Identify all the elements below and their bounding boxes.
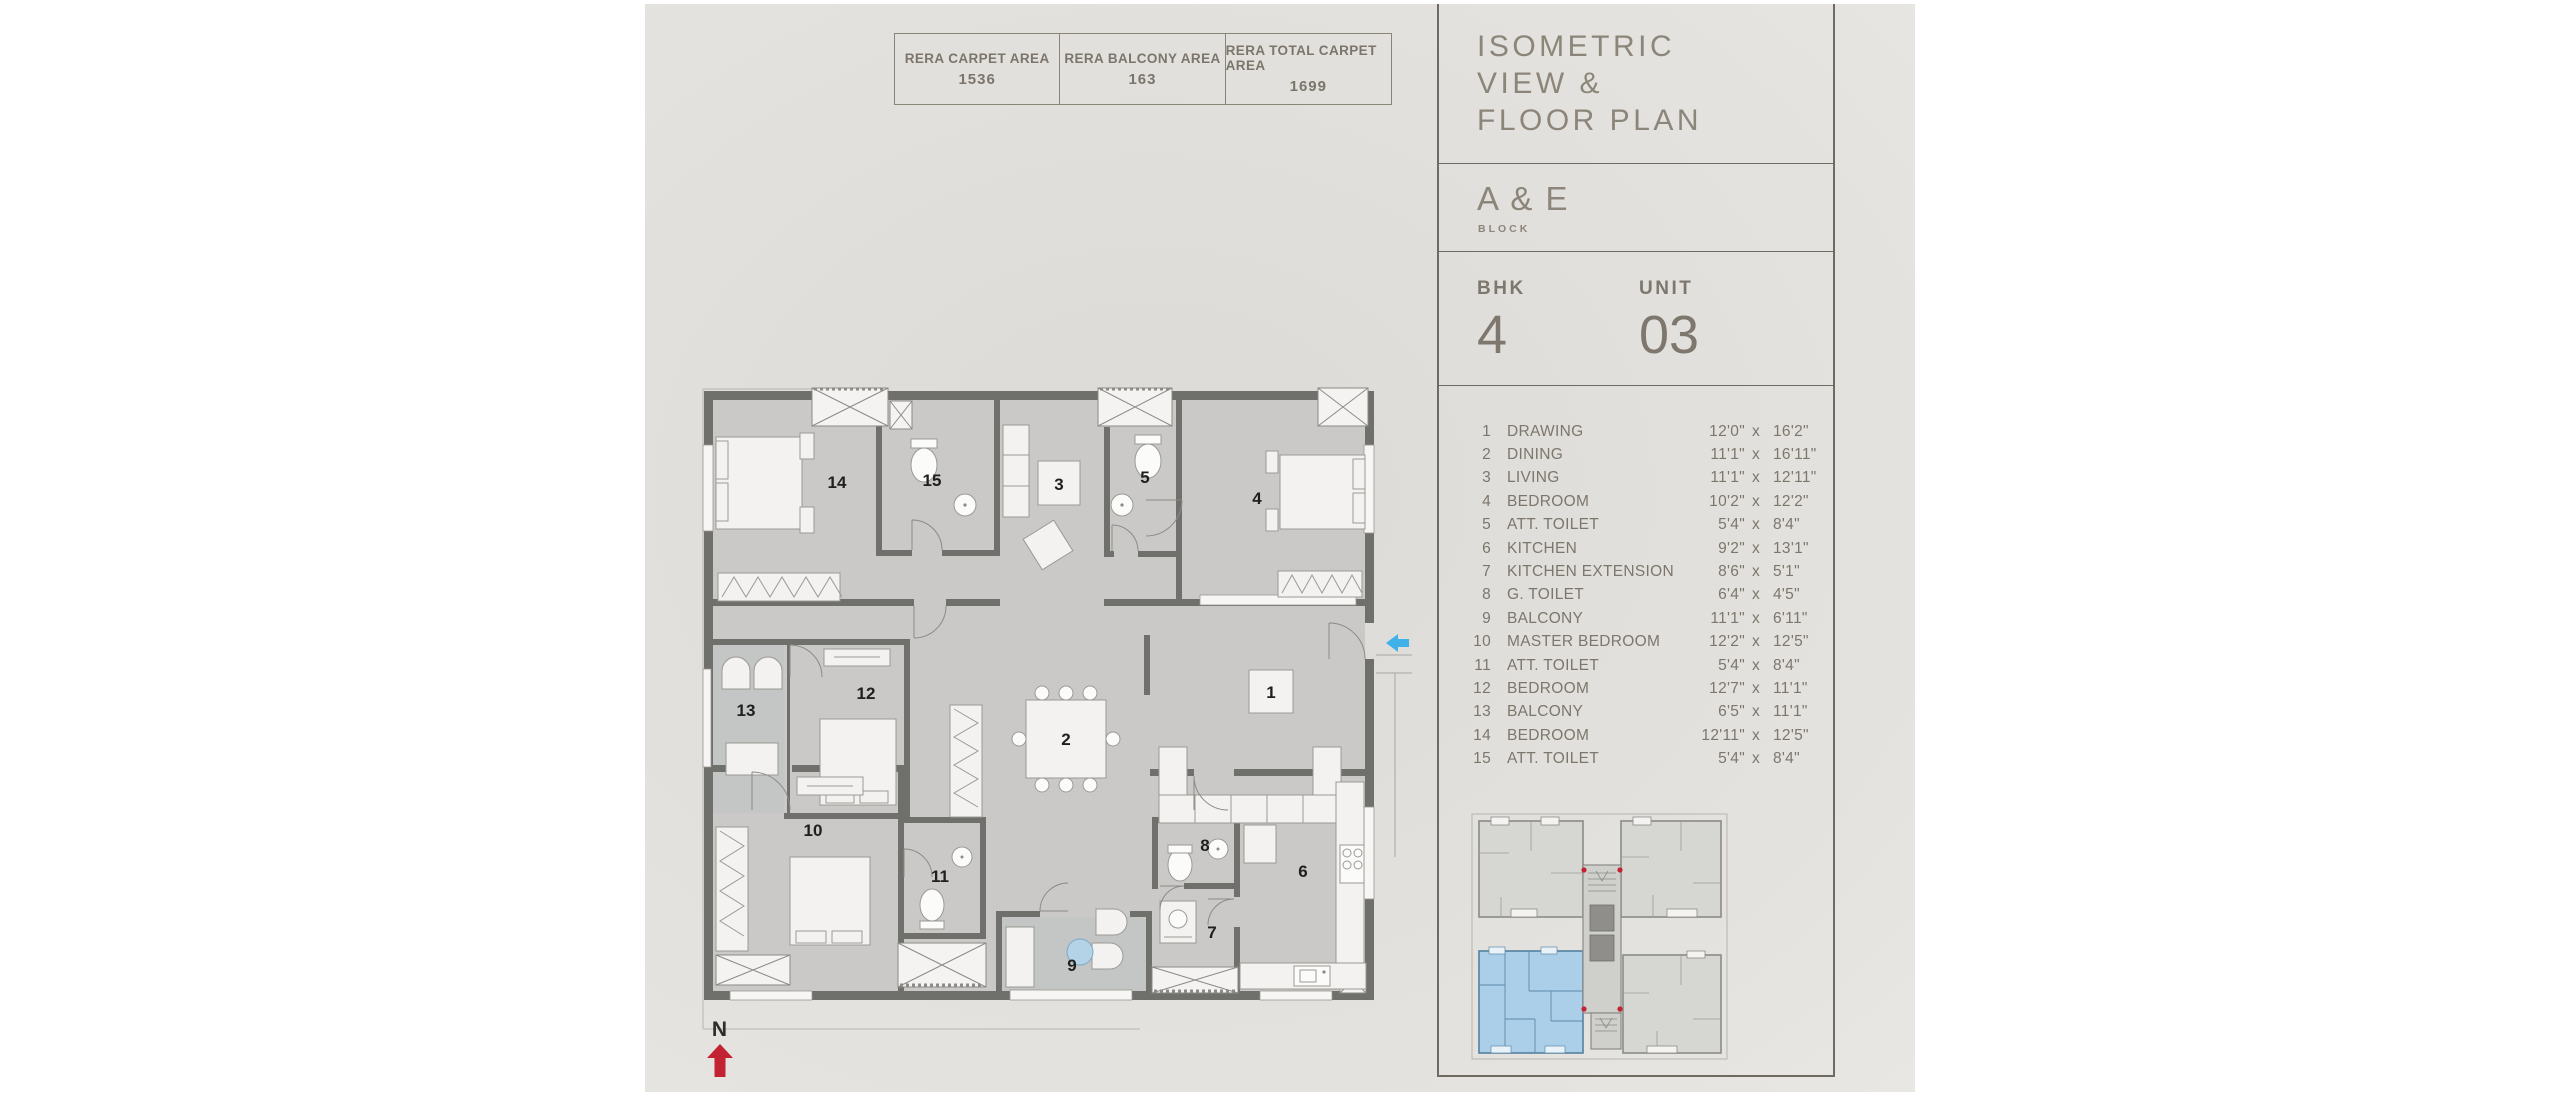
wardrobe-14-icon [718,573,842,601]
passage-wardrobe-icon [950,705,982,817]
dimension-row: 4BEDROOM10'2"x12'2" [1439,490,1833,513]
unit-label: UNIT [1639,278,1699,300]
duct-below-toilet-11 [898,943,986,987]
dimension-row: 14BEDROOM12'11"x12'5" [1439,724,1833,747]
keyplan-unit-highlighted [1479,947,1583,1053]
unit-column: UNIT 03 [1639,278,1699,366]
room-label-7: 7 [1207,923,1216,942]
unit-value: 03 [1639,304,1699,366]
room-label-3: 3 [1054,475,1063,494]
washing-machine-icon [1160,901,1196,943]
dimension-row: 1DRAWING12'0"x16'2" [1439,420,1833,443]
room-label-4: 4 [1252,489,1262,508]
room-label-2: 2 [1061,730,1070,749]
bed-4-icon [1266,451,1365,531]
keyplan-unit-top-right [1621,817,1721,917]
bhk-column: BHK 4 [1477,278,1526,366]
dimension-row: 3LIVING11'1"x12'11" [1439,467,1833,490]
dimension-row: 9BALCONY11'1"x6'11" [1439,607,1833,630]
bhk-unit-section: BHK 4 UNIT 03 [1439,252,1833,386]
rera-carpet-area-label: RERA CARPET AREA [905,51,1050,66]
rera-total-area-value: 1699 [1290,78,1327,95]
page-title-line1: ISOMETRIC [1477,28,1833,65]
rera-total-area-cell: RERA TOTAL CARPET AREA 1699 [1226,34,1391,104]
dimension-row: 10MASTER BEDROOM12'2"x12'5" [1439,631,1833,654]
dimension-row: 6KITCHEN9'2"x13'1" [1439,537,1833,560]
duct-top-3 [1318,388,1368,426]
duct-below-kitchen-ext [1152,967,1238,993]
north-label: N [702,1018,738,1042]
room-label-8: 8 [1200,836,1209,855]
room-label-1: 1 [1266,683,1275,702]
dimension-row: 11ATT. TOILET5'4"x8'4" [1439,654,1833,677]
dimension-row: 7KITCHEN EXTENSION8'6"x5'1" [1439,560,1833,583]
rera-total-area-label: RERA TOTAL CARPET AREA [1226,43,1391,73]
dimension-row: 12BEDROOM12'7"x11'1" [1439,677,1833,700]
block-name: A & E [1477,180,1833,218]
dimensions-table: 1DRAWING12'0"x16'2"2DINING11'1"x16'11"3L… [1439,386,1833,771]
room-label-6: 6 [1298,862,1307,881]
dimension-row: 2DINING11'1"x16'11" [1439,443,1833,466]
page-title-line3: FLOOR PLAN [1477,102,1833,139]
rera-balcony-area-value: 163 [1128,71,1156,88]
room-label-15: 15 [923,471,942,490]
corridor-context-lines [1376,655,1412,857]
entry-direction-arrow-icon [1386,634,1409,652]
duct-bottom-left [716,955,790,985]
keyplan-unit-bottom-right [1623,951,1721,1053]
room-label-11: 11 [931,867,949,886]
page-canvas: RERA CARPET AREA 1536 RERA BALCONY AREA … [645,4,1915,1092]
bed-14-icon [716,433,814,533]
duct-top-1 [812,388,888,426]
wardrobe-10-icon [716,827,748,951]
room-label-13: 13 [737,701,756,720]
block-section: A & E BLOCK [1439,164,1833,252]
keyplan-core [1583,865,1621,1049]
wardrobe-4-icon [1278,571,1362,597]
rera-carpet-area-value: 1536 [958,71,995,88]
room-label-12: 12 [857,684,876,703]
dimension-row: 15ATT. TOILET5'4"x8'4" [1439,747,1833,770]
page-title: ISOMETRIC VIEW & FLOOR PLAN [1477,28,1833,139]
bhk-value: 4 [1477,304,1526,366]
room-label-9: 9 [1067,956,1076,975]
bhk-label: BHK [1477,278,1526,300]
duct-top-2 [1098,388,1172,426]
keyplan-unit-top-left [1479,817,1583,917]
duct-top-1b [890,401,912,429]
panel-title-section: ISOMETRIC VIEW & FLOOR PLAN [1439,4,1833,164]
floor-plan: 1 2 3 4 5 6 7 8 9 10 11 12 13 14 15 [700,387,1413,1037]
room-label-5: 5 [1140,468,1149,487]
rera-balcony-area-label: RERA BALCONY AREA [1064,51,1220,66]
rera-balcony-area-cell: RERA BALCONY AREA 163 [1060,34,1225,104]
north-arrow-icon [706,1044,734,1077]
dimension-row: 13BALCONY6'5"x11'1" [1439,701,1833,724]
room-label-10: 10 [804,821,823,840]
rera-carpet-area-cell: RERA CARPET AREA 1536 [895,34,1060,104]
rera-area-summary: RERA CARPET AREA 1536 RERA BALCONY AREA … [894,33,1392,105]
north-marker: N [702,1018,738,1077]
page-title-line2: VIEW & [1477,65,1833,102]
block-label: BLOCK [1478,223,1833,235]
dimension-row: 8G. TOILET6'4"x4'5" [1439,584,1833,607]
key-plan [1471,813,1729,1063]
room-label-14: 14 [828,473,847,492]
dimension-row: 5ATT. TOILET5'4"x8'4" [1439,514,1833,537]
